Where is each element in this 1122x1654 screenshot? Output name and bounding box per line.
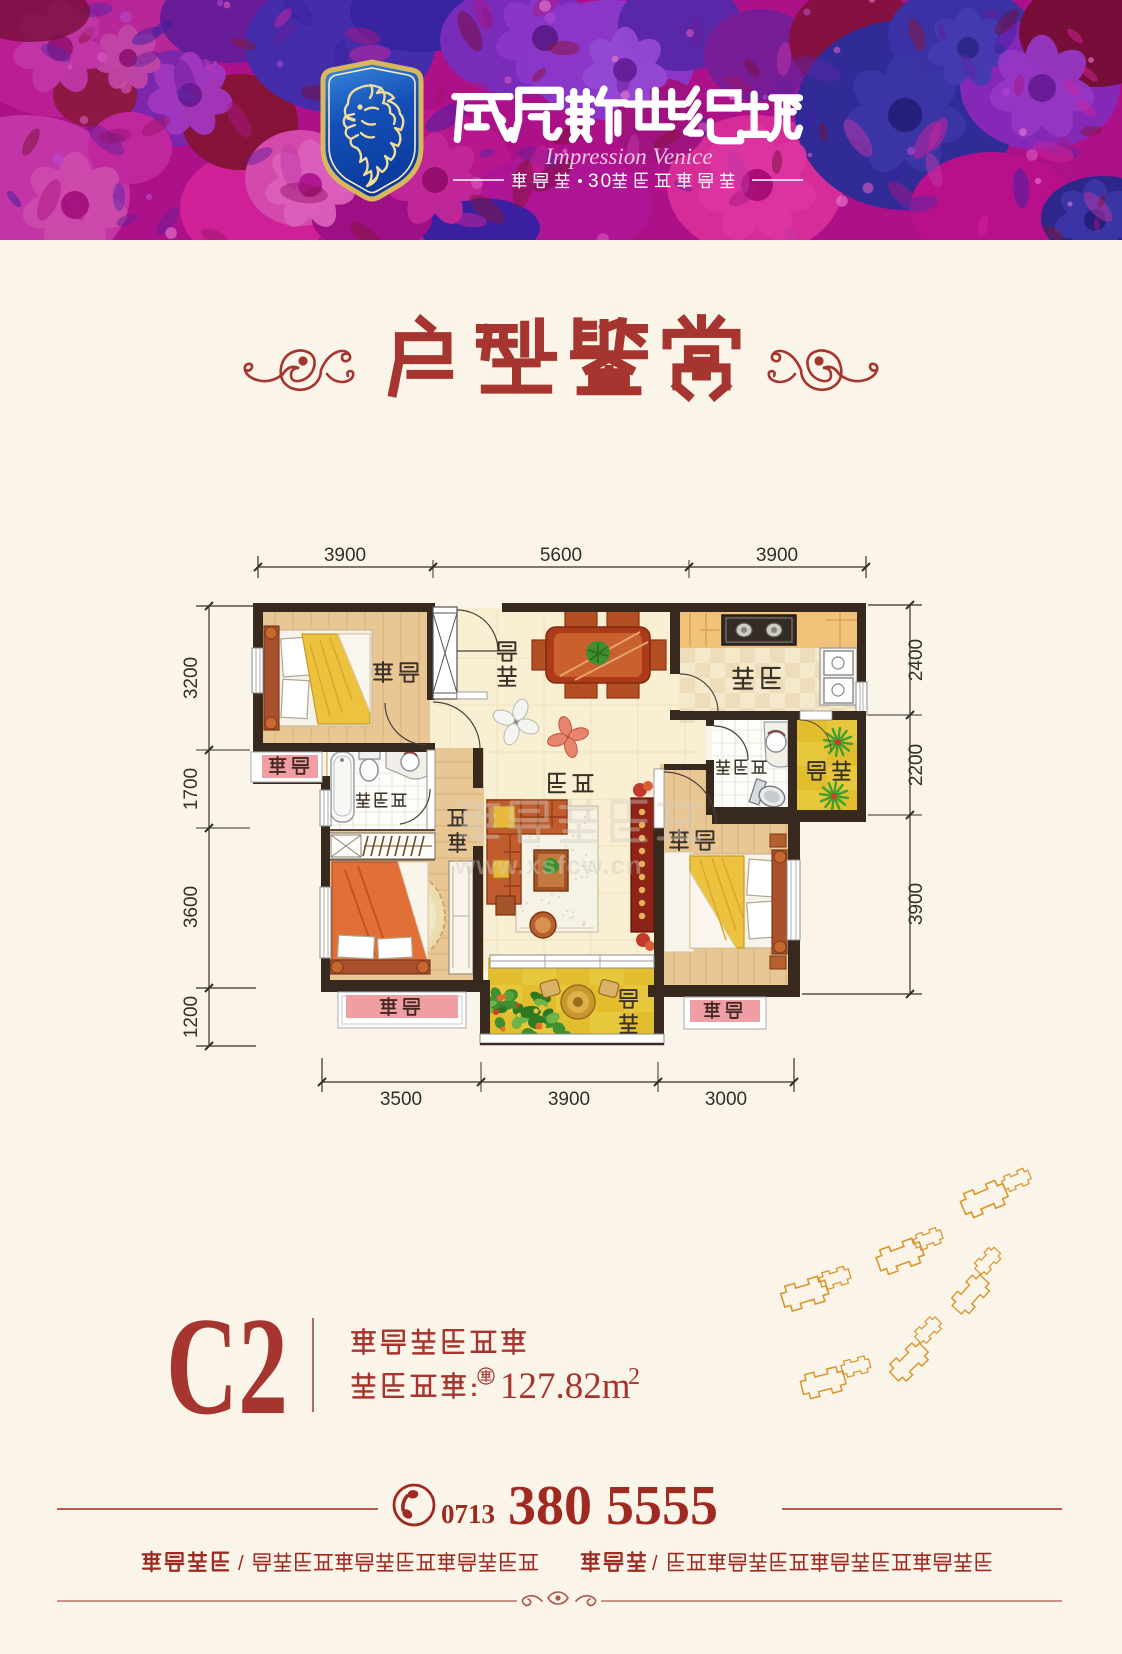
svg-text:127.82m: 127.82m [500, 1366, 631, 1407]
svg-text:3600: 3600 [181, 886, 202, 928]
svg-text:1700: 1700 [181, 768, 202, 810]
svg-text:www.xsfcw.cn: www.xsfcw.cn [454, 850, 643, 880]
svg-text:3200: 3200 [181, 657, 202, 699]
svg-text:1200: 1200 [181, 996, 202, 1038]
svg-text:3500: 3500 [380, 1089, 422, 1110]
svg-text:3900: 3900 [324, 545, 366, 566]
svg-text:/: / [238, 1553, 244, 1575]
svg-text:5600: 5600 [540, 545, 582, 566]
svg-text:0713: 0713 [441, 1499, 495, 1529]
svg-text:3900: 3900 [906, 883, 927, 925]
svg-text:2200: 2200 [906, 744, 927, 786]
svg-text:C2: C2 [166, 1289, 288, 1444]
svg-text:380 5555: 380 5555 [508, 1475, 718, 1537]
svg-text:2400: 2400 [906, 639, 927, 681]
svg-text::: : [470, 1375, 478, 1402]
svg-text:2: 2 [628, 1364, 640, 1390]
svg-text:3900: 3900 [756, 545, 798, 566]
svg-text:Impression Venice: Impression Venice [544, 144, 712, 169]
svg-text:3900: 3900 [548, 1089, 590, 1110]
svg-text:3000: 3000 [705, 1089, 747, 1110]
svg-text:/: / [652, 1553, 658, 1575]
svg-text:30: 30 [588, 171, 613, 192]
